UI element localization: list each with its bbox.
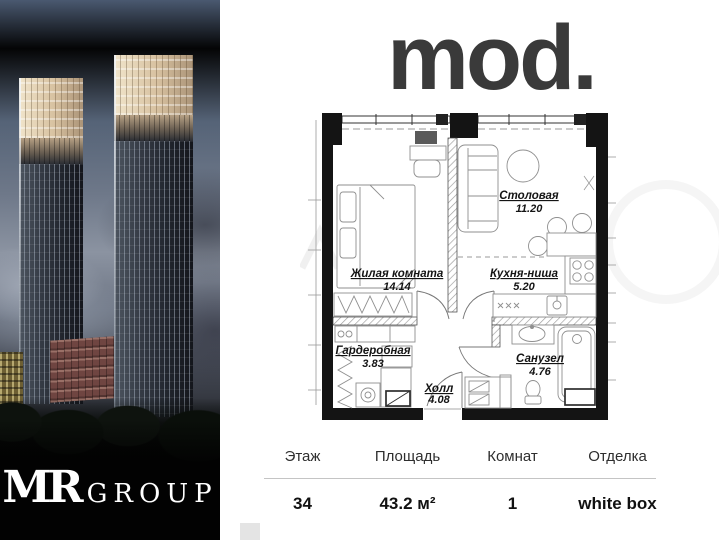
sofa <box>458 145 498 232</box>
header-floor: Этаж <box>250 448 355 465</box>
washing-machine <box>356 383 380 407</box>
room-label-hall: Холл 4.08 <box>424 383 454 406</box>
svg-text:Санузел: Санузел <box>516 353 564 365</box>
floor-plan: Жилая комната 14.14 Столовая 11.20 Кухня… <box>300 103 625 428</box>
svg-text:Жилая комната: Жилая комната <box>350 268 444 280</box>
details-divider <box>264 478 656 479</box>
room-label-bathroom: Санузел 4.76 <box>516 353 564 378</box>
value-floor: 34 <box>250 494 355 514</box>
tower-left-neck <box>19 138 83 164</box>
header-finishing: Отделка <box>565 448 670 465</box>
tower-right <box>114 55 193 417</box>
round-table <box>507 150 539 182</box>
value-area: 43.2 м² <box>355 494 460 514</box>
svg-text:14.14: 14.14 <box>383 281 411 293</box>
building-photo: MR GROUP <box>0 0 220 540</box>
value-rooms: 1 <box>460 494 565 514</box>
closet-rail <box>334 293 412 316</box>
svg-text:5.20: 5.20 <box>513 281 535 293</box>
bathroom-fixtures <box>512 325 595 405</box>
developer-logo: MR GROUP <box>0 466 220 510</box>
svg-text:Столовая: Столовая <box>499 190 559 202</box>
room-label-kitchen: Кухня-ниша 5.20 <box>490 268 559 293</box>
window-post <box>436 114 448 125</box>
watermark-fragment <box>240 523 260 540</box>
svg-text:Гардеробная: Гардеробная <box>335 345 410 357</box>
wall-opening-mark <box>584 176 594 190</box>
listing-image: MR GROUP mod. <box>0 0 719 540</box>
header-area: Площадь <box>355 448 460 465</box>
bar-counter <box>547 233 596 256</box>
hall-closet <box>465 375 511 408</box>
details-headers: Этаж Площадь Комнат Отделка <box>250 448 670 465</box>
tower-right-crown <box>114 55 193 115</box>
tower-left-crown <box>19 78 83 138</box>
header-rooms: Комнат <box>460 448 565 465</box>
developer-logo-text: GROUP <box>87 481 218 507</box>
value-finishing: white box <box>565 494 670 514</box>
project-logo: mod. <box>386 12 596 104</box>
svg-text:4.76: 4.76 <box>528 366 551 378</box>
tower-right-shaft <box>114 141 193 417</box>
desk <box>410 131 446 177</box>
developer-logo-mark: MR <box>2 466 79 510</box>
window-post <box>574 114 586 125</box>
svg-text:11.20: 11.20 <box>516 203 544 215</box>
svg-text:4.08: 4.08 <box>427 394 450 406</box>
room-label-dining: Столовая 11.20 <box>499 190 559 215</box>
details-values: 34 43.2 м² 1 white box <box>250 494 670 514</box>
svg-text:3.83: 3.83 <box>362 358 383 370</box>
tower-right-neck <box>114 115 193 141</box>
details-table: Этаж Площадь Комнат Отделка 34 43.2 м² 1… <box>250 448 670 514</box>
svg-text:Кухня-ниша: Кухня-ниша <box>490 268 559 280</box>
toilet <box>526 381 540 398</box>
